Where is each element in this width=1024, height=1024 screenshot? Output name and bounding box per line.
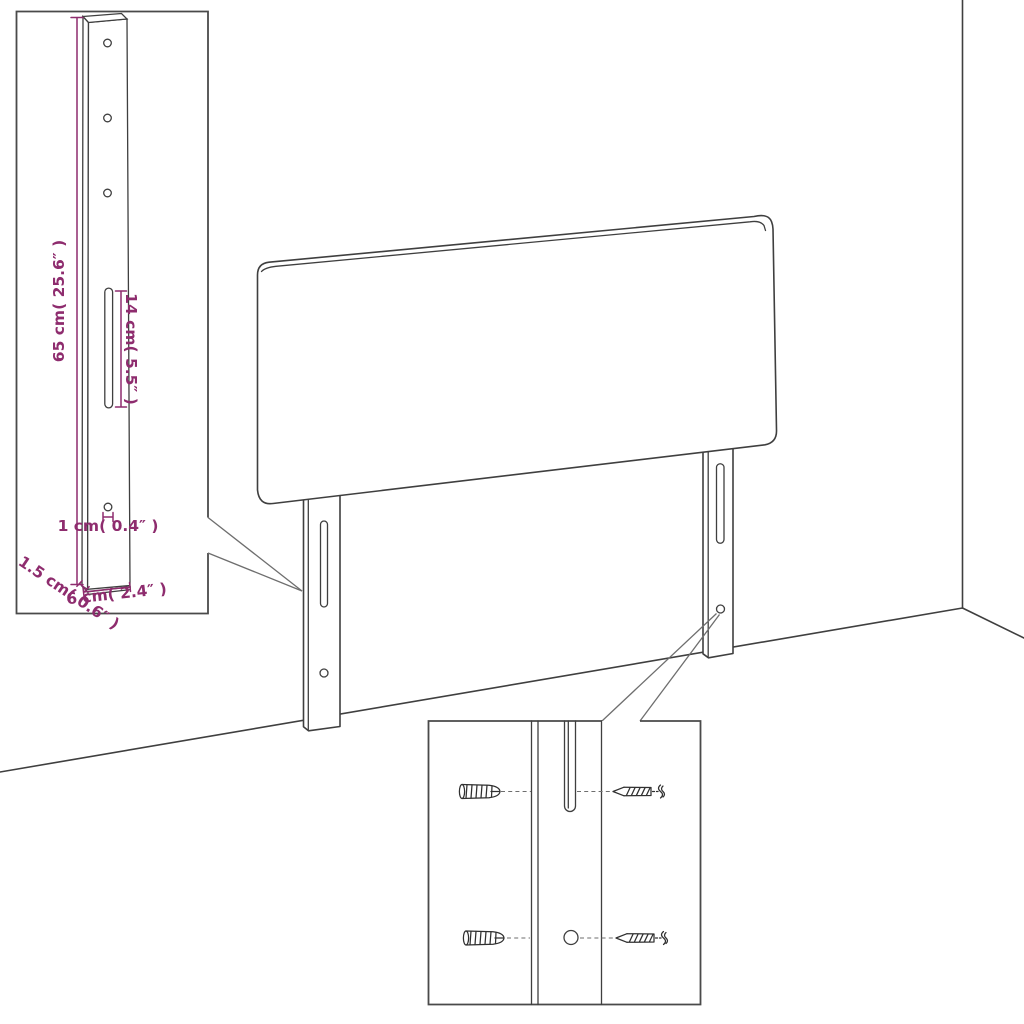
right-leg-body [703, 444, 733, 658]
dimension-label-height: 65 cm( 25.6″ ) [50, 240, 68, 362]
diagram-canvas: 65 cm( 25.6″ ) 14 cm( 5.5″ ) 1 cm( 0.4″ … [0, 0, 1024, 1024]
floor-line-right [963, 608, 1024, 638]
dimension-label-hole: 1 cm( 0.4″ ) [58, 517, 159, 535]
callout-leader-line-upper [208, 518, 302, 592]
dimension-label-slot: 14 cm( 5.5″ ) [122, 293, 140, 405]
callout-leader-line-lower [208, 553, 302, 591]
mounting-leader-line-right [640, 615, 720, 722]
headboard-panel [258, 216, 777, 504]
right-mounting-leg [703, 444, 733, 658]
headboard-outline [258, 216, 777, 504]
mounting-detail-inset [429, 614, 720, 1005]
left-mounting-leg [304, 489, 341, 731]
left-leg-body [304, 489, 341, 731]
headboard-assembly-diagram: 65 cm( 25.6″ ) 14 cm( 5.5″ ) 1 cm( 0.4″ … [0, 0, 1024, 1024]
